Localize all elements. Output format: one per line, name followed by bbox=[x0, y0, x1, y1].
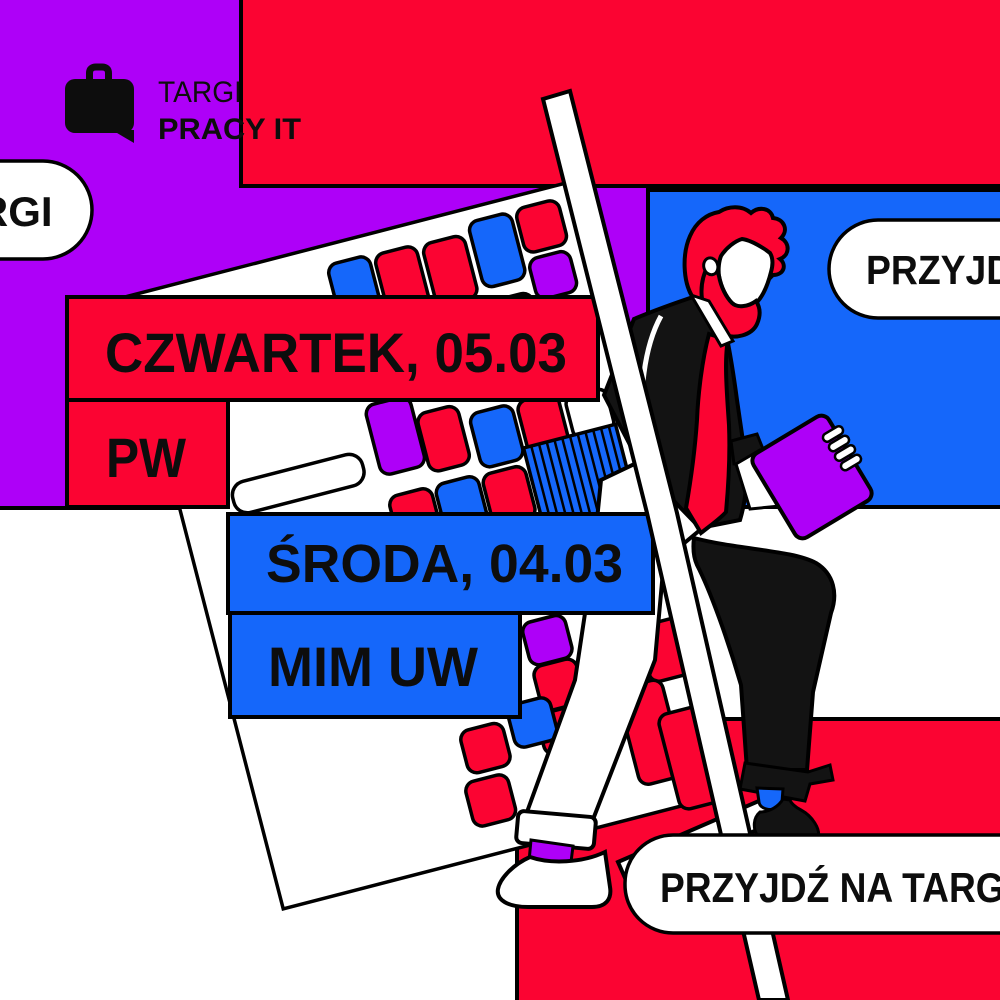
svg-text:CZWARTEK, 05.03: CZWARTEK, 05.03 bbox=[105, 321, 567, 384]
svg-text:ŚRODA, 04.03: ŚRODA, 04.03 bbox=[266, 534, 623, 594]
svg-text:PRZYJDŹ: PRZYJDŹ bbox=[866, 247, 1000, 293]
svg-text:TARGI: TARGI bbox=[158, 76, 242, 109]
svg-text:PRACY IT: PRACY IT bbox=[158, 113, 301, 146]
svg-text:MIM UW: MIM UW bbox=[268, 635, 478, 698]
svg-text:TARGI: TARGI bbox=[0, 188, 53, 235]
svg-text:PRZYJDŹ NA TARGI: PRZYJDŹ NA TARGI bbox=[660, 864, 1000, 911]
svg-text:PW: PW bbox=[106, 426, 186, 489]
